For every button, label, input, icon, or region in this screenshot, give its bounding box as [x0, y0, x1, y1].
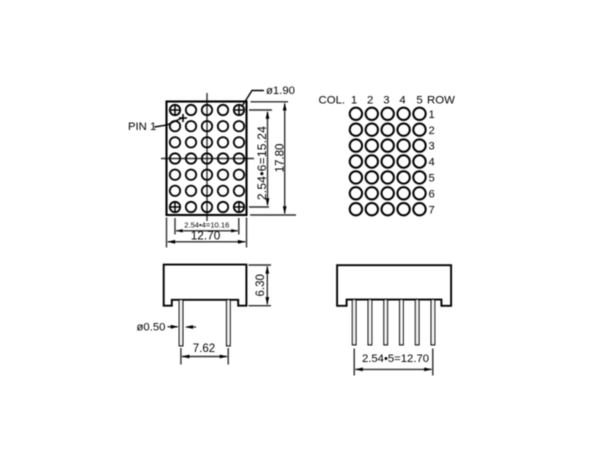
svg-text:ø1.90: ø1.90: [266, 85, 295, 97]
svg-text:3: 3: [429, 141, 435, 153]
svg-text:2.54•6=15.24: 2.54•6=15.24: [255, 126, 269, 200]
svg-text:3: 3: [383, 94, 389, 106]
svg-text:ROW: ROW: [427, 94, 455, 106]
svg-text:4: 4: [429, 157, 435, 169]
svg-text:6.30: 6.30: [255, 274, 267, 296]
svg-text:2: 2: [429, 125, 435, 137]
svg-text:COL.: COL.: [319, 94, 346, 106]
svg-text:7: 7: [429, 204, 435, 216]
svg-text:5: 5: [416, 94, 422, 106]
svg-text:17.80: 17.80: [275, 144, 287, 173]
svg-text:1: 1: [351, 94, 357, 106]
svg-text:2.54•5=12.70: 2.54•5=12.70: [362, 353, 429, 365]
svg-text:6: 6: [429, 188, 435, 200]
svg-text:1: 1: [429, 109, 435, 121]
svg-text:12.70: 12.70: [191, 229, 221, 243]
svg-text:2: 2: [367, 94, 373, 106]
svg-text:PIN 1: PIN 1: [128, 121, 156, 133]
svg-text:5: 5: [429, 173, 435, 185]
svg-text:ø0.50: ø0.50: [137, 321, 166, 333]
svg-text:7.62: 7.62: [193, 343, 215, 355]
svg-text:4: 4: [399, 94, 405, 106]
